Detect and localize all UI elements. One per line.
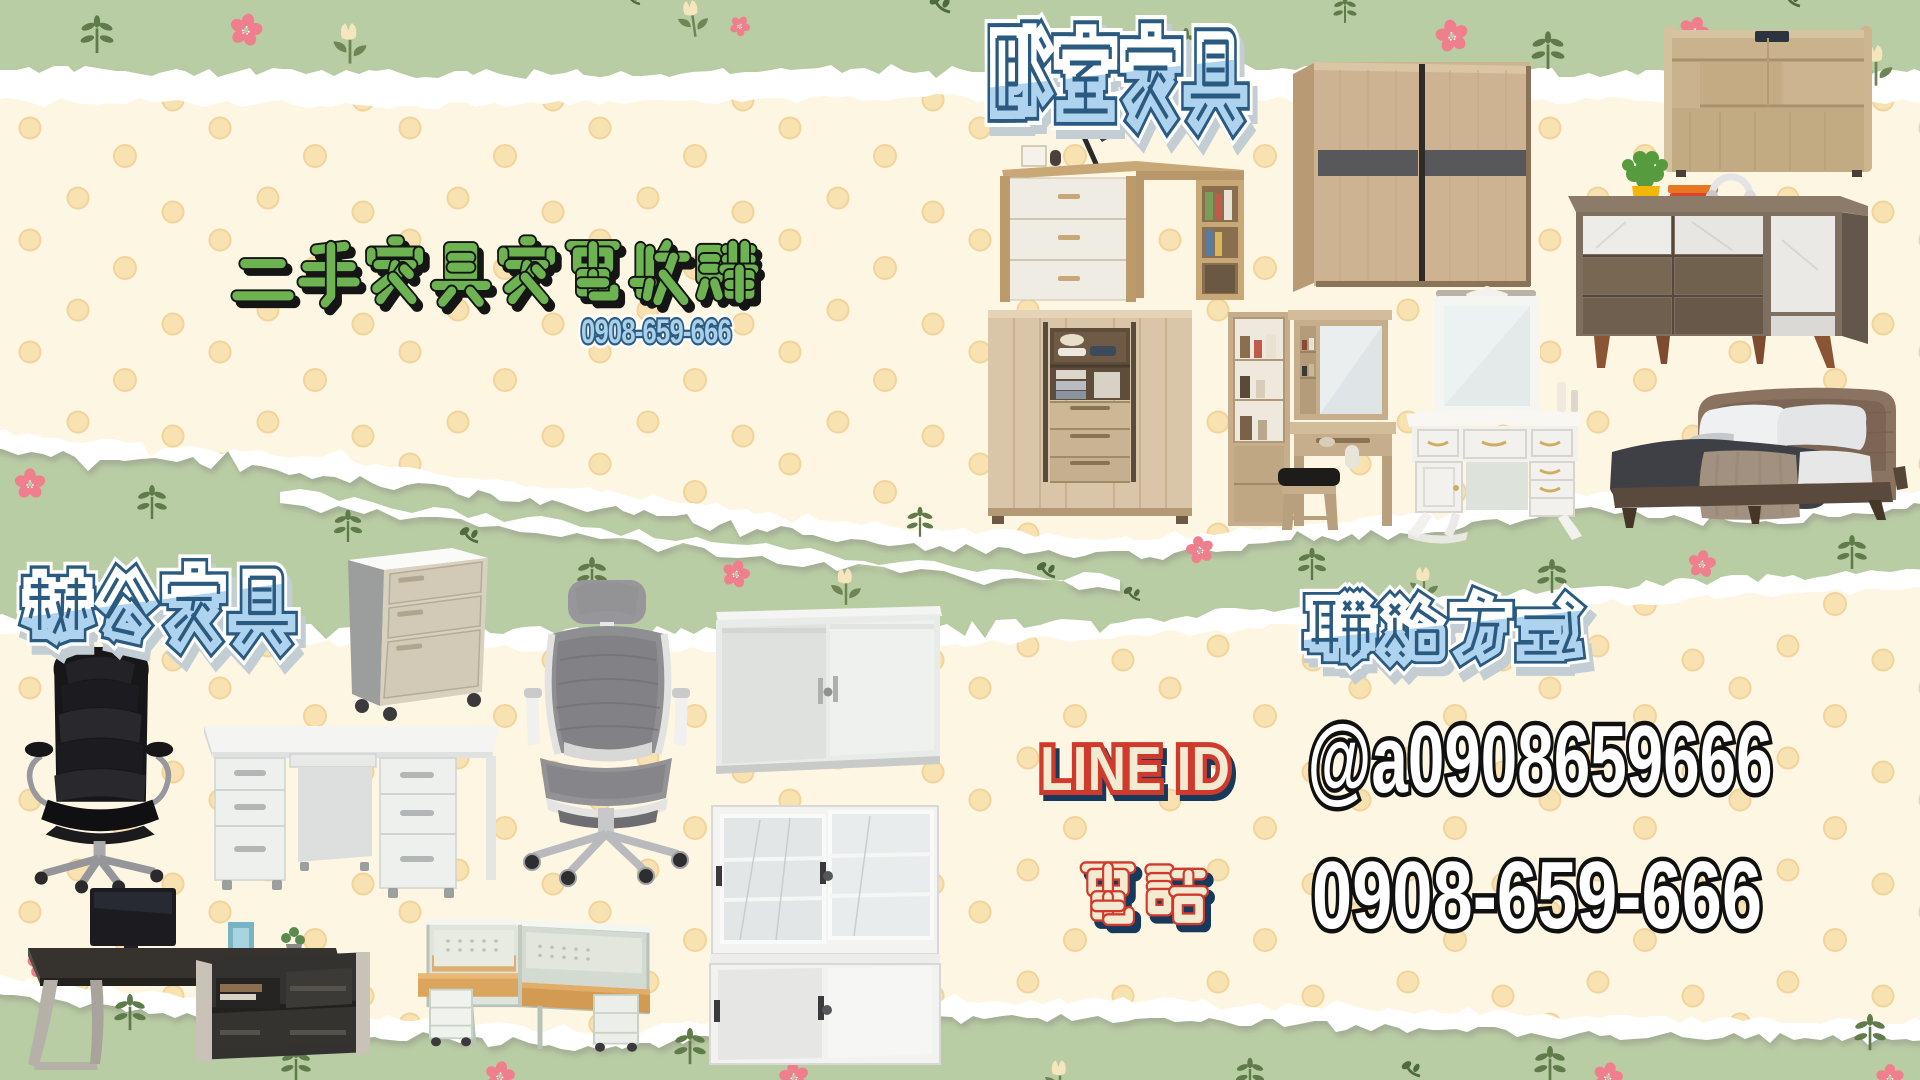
svg-text:LINE ID: LINE ID: [1040, 735, 1230, 804]
svg-text:0908-659-666: 0908-659-666: [581, 313, 731, 351]
svg-text:0908-659-666: 0908-659-666: [1312, 842, 1762, 949]
svg-text:@a0908659666: @a0908659666: [1308, 706, 1773, 813]
